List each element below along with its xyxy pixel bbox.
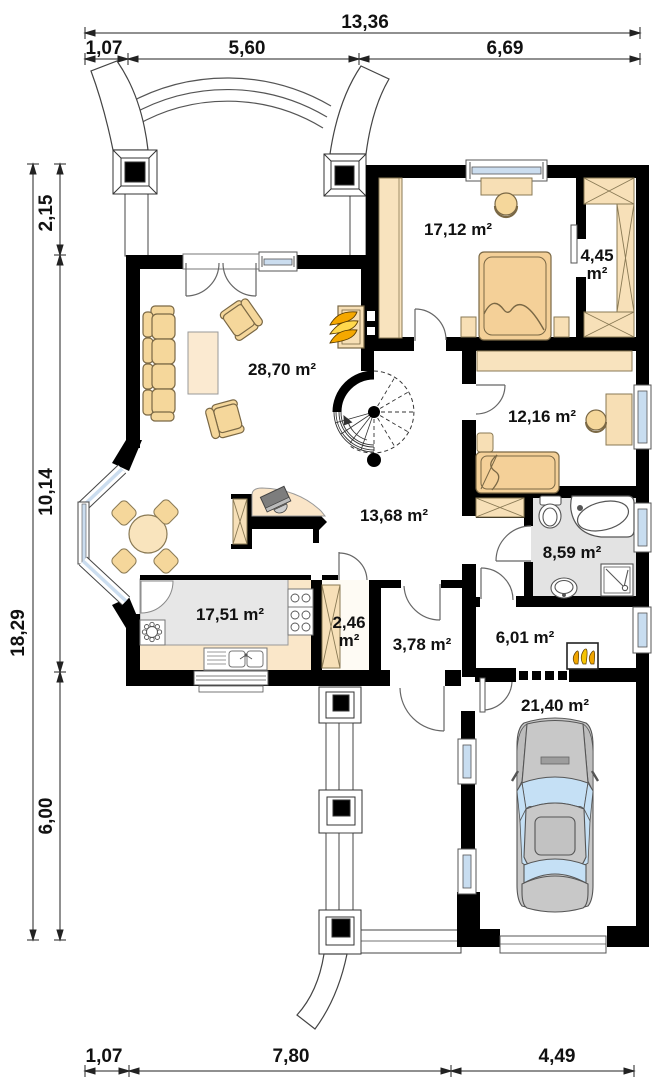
svg-text:12,16 m²: 12,16 m²	[508, 407, 576, 426]
svg-text:6,69: 6,69	[487, 38, 524, 59]
svg-text:8,59 m²: 8,59 m²	[543, 543, 602, 562]
svg-text:17,51 m²: 17,51 m²	[196, 605, 264, 624]
svg-text:13,68 m²: 13,68 m²	[360, 506, 428, 525]
svg-text:6,01 m²: 6,01 m²	[496, 628, 555, 647]
svg-text:28,70 m²: 28,70 m²	[248, 360, 316, 379]
svg-text:1,07: 1,07	[86, 1046, 123, 1067]
svg-text:13,36: 13,36	[341, 12, 389, 33]
svg-text:10,14: 10,14	[36, 468, 57, 516]
svg-text:1,07: 1,07	[86, 38, 123, 59]
svg-text:m²: m²	[339, 631, 360, 650]
svg-text:17,12 m²: 17,12 m²	[424, 220, 492, 239]
svg-text:4,45: 4,45	[580, 246, 613, 265]
svg-text:4,49: 4,49	[539, 1046, 576, 1067]
svg-text:7,80: 7,80	[273, 1046, 310, 1067]
svg-text:21,40 m²: 21,40 m²	[521, 696, 589, 715]
svg-text:2,15: 2,15	[36, 194, 57, 231]
svg-text:18,29: 18,29	[8, 609, 29, 657]
svg-text:3,78 m²: 3,78 m²	[393, 635, 452, 654]
svg-text:2,46: 2,46	[332, 613, 365, 632]
svg-text:6,00: 6,00	[36, 798, 57, 835]
svg-text:5,60: 5,60	[229, 38, 266, 59]
svg-text:m²: m²	[587, 264, 608, 283]
